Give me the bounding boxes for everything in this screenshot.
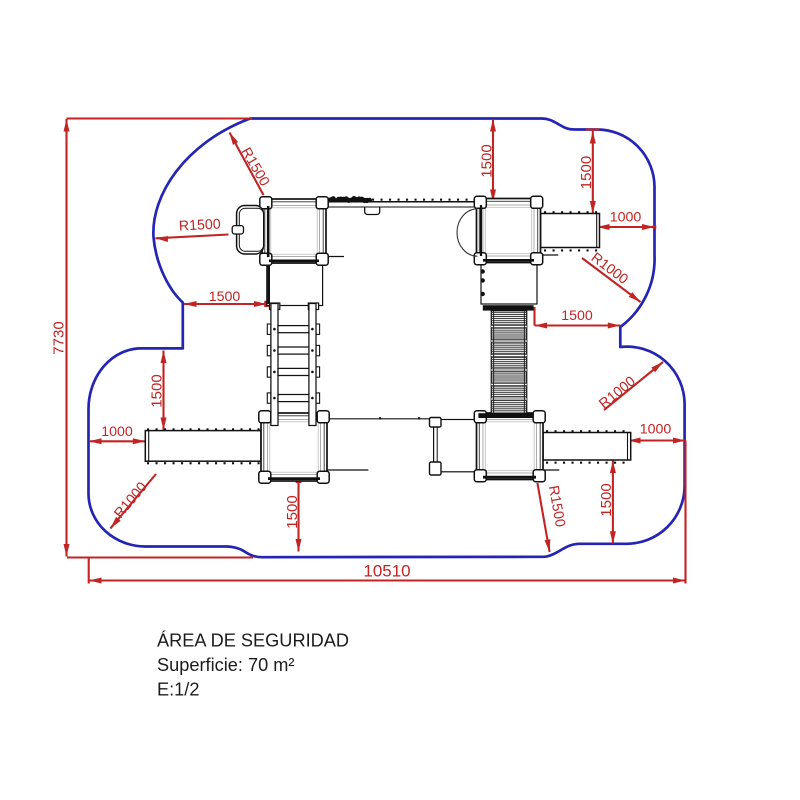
svg-text:1500: 1500: [284, 495, 301, 528]
svg-text:1500: 1500: [561, 308, 593, 324]
svg-text:1000: 1000: [640, 422, 672, 438]
svg-text:R1000: R1000: [596, 373, 639, 412]
svg-text:ÁREA DE SEGURIDAD: ÁREA DE SEGURIDAD: [157, 631, 349, 651]
svg-text:R1500: R1500: [238, 145, 273, 189]
svg-text:R1000: R1000: [111, 479, 150, 521]
svg-text:7730: 7730: [51, 321, 68, 354]
svg-text:1500: 1500: [578, 156, 595, 189]
svg-text:1500: 1500: [149, 374, 166, 407]
svg-text:10510: 10510: [363, 562, 410, 581]
svg-text:R1000: R1000: [588, 250, 631, 288]
svg-text:1500: 1500: [478, 144, 495, 177]
svg-text:1000: 1000: [101, 424, 133, 440]
svg-text:1500: 1500: [598, 483, 615, 516]
svg-text:Superficie: 70 m²: Superficie: 70 m²: [157, 655, 294, 675]
svg-text:1500: 1500: [209, 289, 241, 305]
svg-text:1000: 1000: [610, 210, 642, 226]
svg-text:R1500: R1500: [545, 484, 568, 528]
svg-text:R1500: R1500: [178, 216, 221, 234]
svg-text:E:1/2: E:1/2: [157, 680, 199, 700]
